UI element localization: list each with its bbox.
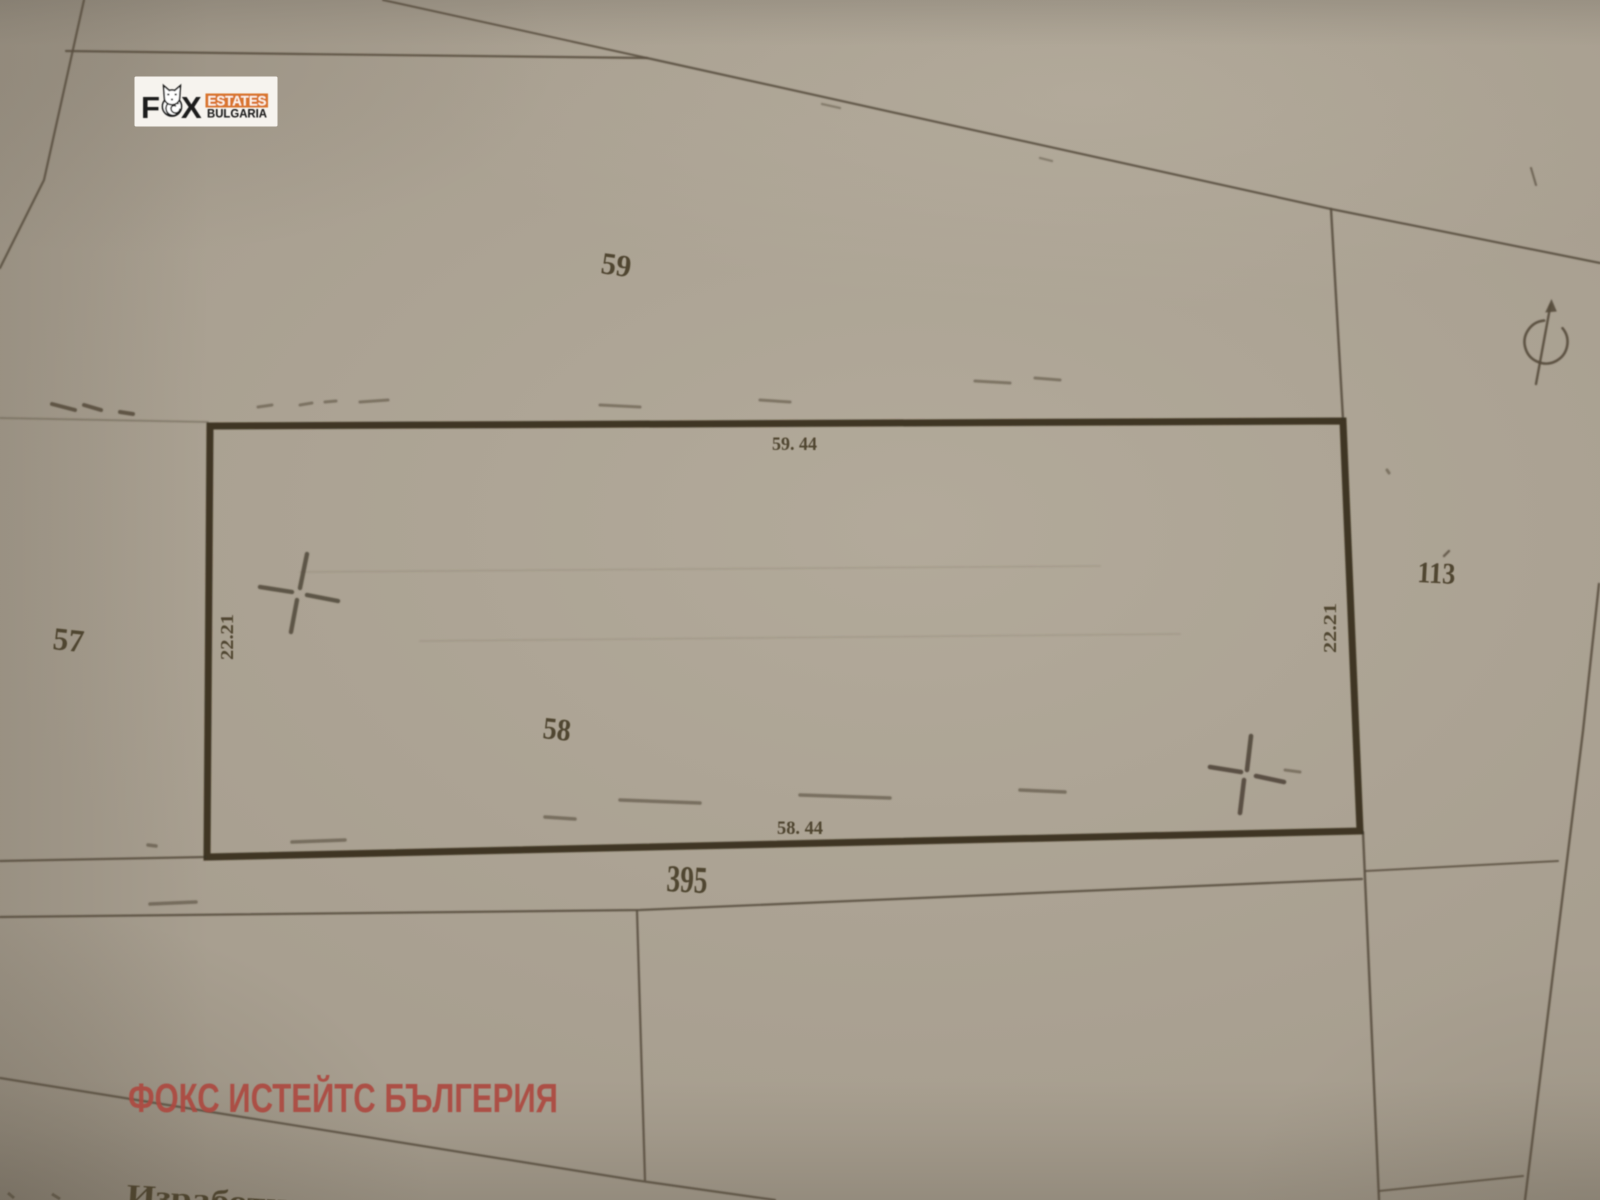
svg-text:113: 113: [1417, 556, 1457, 591]
svg-text:57: 57: [51, 620, 86, 659]
svg-text:Изработил: Изработил: [126, 1179, 310, 1200]
svg-text:395: 395: [666, 858, 709, 902]
svg-text:22.21: 22.21: [217, 614, 237, 660]
svg-text:58. 44: 58. 44: [777, 818, 823, 839]
svg-text:X: X: [181, 90, 202, 125]
svg-text:22.21: 22.21: [1320, 603, 1340, 653]
svg-text:ФОКС ИСТЕЙТС БЪЛГЕРИЯ: ФОКС ИСТЕЙТС БЪЛГЕРИЯ: [128, 1075, 558, 1121]
svg-text:59. 44: 59. 44: [772, 434, 817, 455]
svg-text:BULGARIA: BULGARIA: [207, 107, 267, 121]
svg-text:F: F: [141, 90, 160, 125]
svg-text:59: 59: [599, 245, 634, 284]
svg-text:58: 58: [541, 710, 573, 748]
